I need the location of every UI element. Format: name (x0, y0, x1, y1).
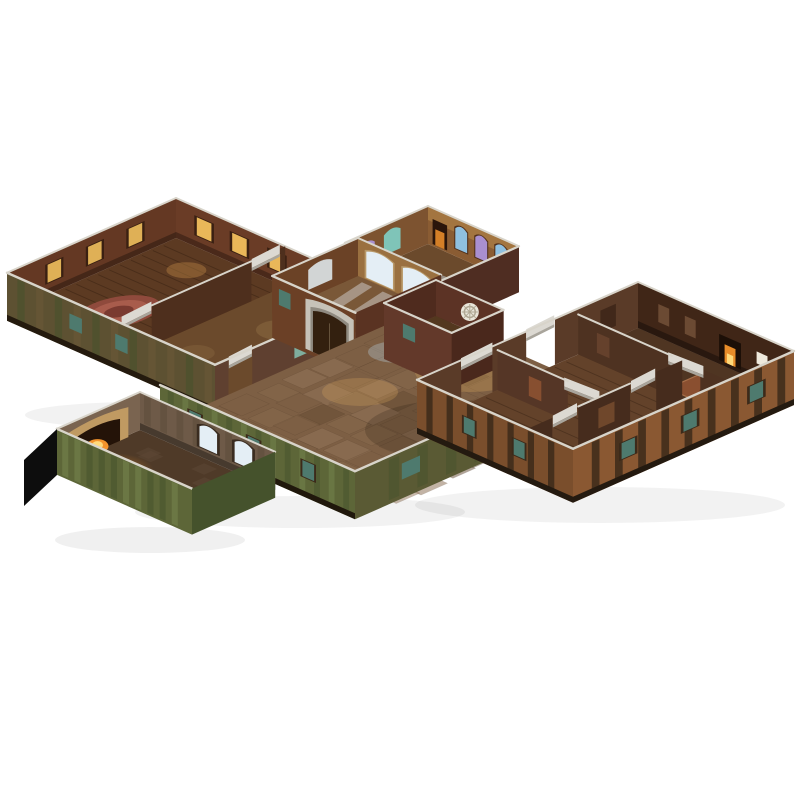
terrain-geometry (87, 444, 93, 489)
terrain-geometry (548, 440, 554, 493)
terrain-geometry (111, 455, 117, 500)
terrain-geometry (708, 388, 716, 441)
terrain-geometry (426, 386, 432, 439)
terrain-geometry (487, 413, 493, 466)
terrain-geometry (160, 476, 166, 521)
terrain-geometry (661, 408, 669, 461)
terrain-geometry (528, 431, 534, 484)
terrain-geometry (148, 337, 155, 384)
terrain-geometry (36, 288, 43, 335)
terrain-geometry (638, 419, 646, 472)
terrain-geometry (167, 346, 174, 393)
terrain-set-illustration (0, 0, 800, 800)
terrain-geometry (55, 527, 245, 553)
terrain-geometry (135, 466, 141, 511)
terrain-geometry (160, 403, 167, 434)
terrain-geometry (55, 296, 62, 343)
terrain-geometry (389, 456, 399, 501)
terrain-geometry (322, 378, 398, 406)
terrain-geometry (177, 410, 184, 441)
terrain-geometry (147, 471, 153, 516)
unprinted-black-side (24, 429, 57, 506)
terrain-geometry (447, 395, 453, 448)
terrain-geometry (62, 433, 68, 478)
rose-window (461, 303, 479, 321)
terrain-geometry (777, 357, 785, 410)
terrain-geometry (415, 487, 785, 523)
terrain-geometry (74, 439, 80, 484)
terrain-geometry (99, 449, 105, 494)
terrain-geometry (731, 377, 739, 431)
terrain-geometry (17, 279, 24, 326)
terrain-geometry (343, 468, 349, 515)
terrain-geometry (144, 396, 151, 427)
terrain-geometry (225, 432, 232, 463)
product-photo-canvas (0, 0, 800, 800)
terrain-geometry (172, 482, 178, 527)
terrain-geometry (462, 304, 478, 320)
terrain-geometry (123, 460, 129, 505)
terrain-geometry (205, 362, 212, 409)
terrain-geometry (285, 442, 291, 489)
terrain-geometry (592, 439, 600, 492)
terrain-geometry (186, 354, 193, 401)
terrain-geometry (329, 462, 335, 509)
terrain-geometry (130, 329, 137, 376)
terrain-geometry (166, 262, 206, 278)
terrain-geometry (92, 313, 99, 360)
